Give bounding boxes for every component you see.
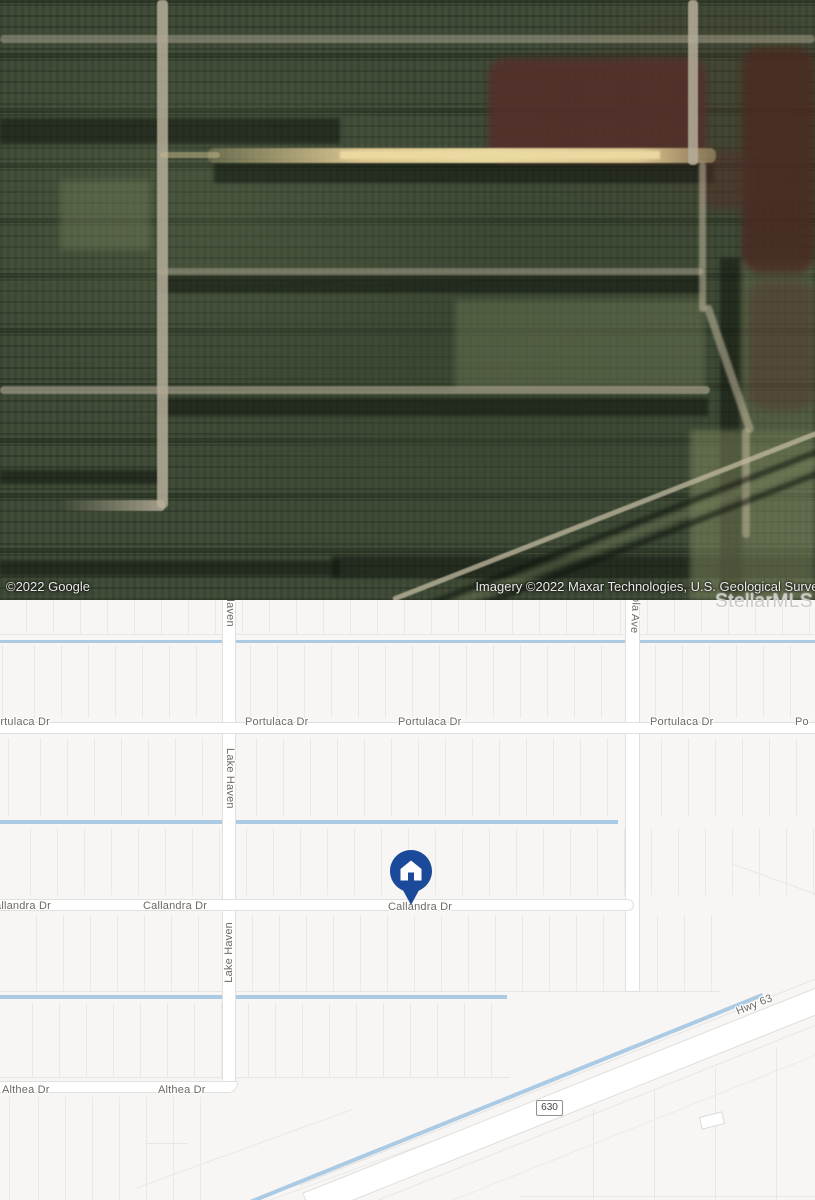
street-map-panel[interactable]: ortulaca Dr Portulaca Dr Portulaca Dr Po… <box>0 600 815 1200</box>
street-label-portulaca: Portulaca Dr <box>398 715 462 730</box>
tree-row <box>0 118 340 144</box>
dead-tree-patch <box>742 48 815 273</box>
canal <box>0 640 815 643</box>
tree-row <box>158 398 708 416</box>
stellar-mls-watermark: StellarMLS <box>715 591 813 613</box>
parcel-band <box>0 600 815 635</box>
street-label-portulaca: Portulaca Dr <box>245 715 309 730</box>
dirt-road-horizontal <box>158 268 703 275</box>
street-label-althea: Althea Dr <box>2 1083 50 1098</box>
clearing <box>455 300 705 390</box>
tree-row <box>158 277 703 293</box>
parcel-band <box>0 1003 510 1078</box>
street-label-callandra: allandra Dr <box>0 899 51 914</box>
parcel-line <box>146 1143 188 1144</box>
street-label-ola-ave: ola Ave <box>626 600 643 634</box>
home-pin-icon <box>388 848 434 906</box>
dirt-road-corner <box>60 500 165 511</box>
google-attribution: ©2022 Google <box>6 579 90 594</box>
street-label-lake-haven: Lake Haven <box>222 748 237 809</box>
street-label-portulaca: Po <box>795 715 809 730</box>
listing-map-screenshot: ©2022 Google Imagery ©2022 Maxar Technol… <box>0 0 815 1200</box>
dirt-road-vertical <box>157 0 168 508</box>
street-label-callandra: Callandra Dr <box>143 899 207 914</box>
parcel-line <box>520 1196 815 1197</box>
canal <box>0 995 507 999</box>
tree-row <box>0 470 160 484</box>
street-label-portulaca: Portulaca Dr <box>650 715 714 730</box>
home-pin[interactable] <box>388 848 434 911</box>
street-label-portulaca: ortulaca Dr <box>0 715 50 730</box>
clearing <box>60 180 150 250</box>
dead-tree-patch <box>488 58 706 162</box>
route-shield-630: 630 <box>536 1100 563 1116</box>
canal <box>0 820 618 824</box>
road-callandra <box>0 899 634 911</box>
satellite-map-panel[interactable]: ©2022 Google Imagery ©2022 Maxar Technol… <box>0 0 815 600</box>
dirt-road-horizontal <box>0 386 710 394</box>
road-ola-ave <box>625 600 640 992</box>
tree-row <box>214 163 714 183</box>
street-label-althea: Althea Dr <box>158 1083 206 1098</box>
dead-tree-patch <box>748 280 815 410</box>
parcel-band <box>0 915 720 992</box>
street-label-haven: Haven <box>222 600 237 627</box>
sand-trail <box>699 162 706 312</box>
road-lake-haven <box>222 600 236 1089</box>
parcel-band <box>0 738 815 816</box>
street-label-lake-haven: Lake Haven <box>222 922 237 983</box>
sandy-road-core <box>340 151 660 159</box>
tree-row <box>0 560 340 576</box>
dirt-road-vertical-east <box>688 0 698 165</box>
parcel-band <box>0 645 815 718</box>
parcel-band <box>0 1097 218 1200</box>
sandy-road-west <box>160 152 220 158</box>
